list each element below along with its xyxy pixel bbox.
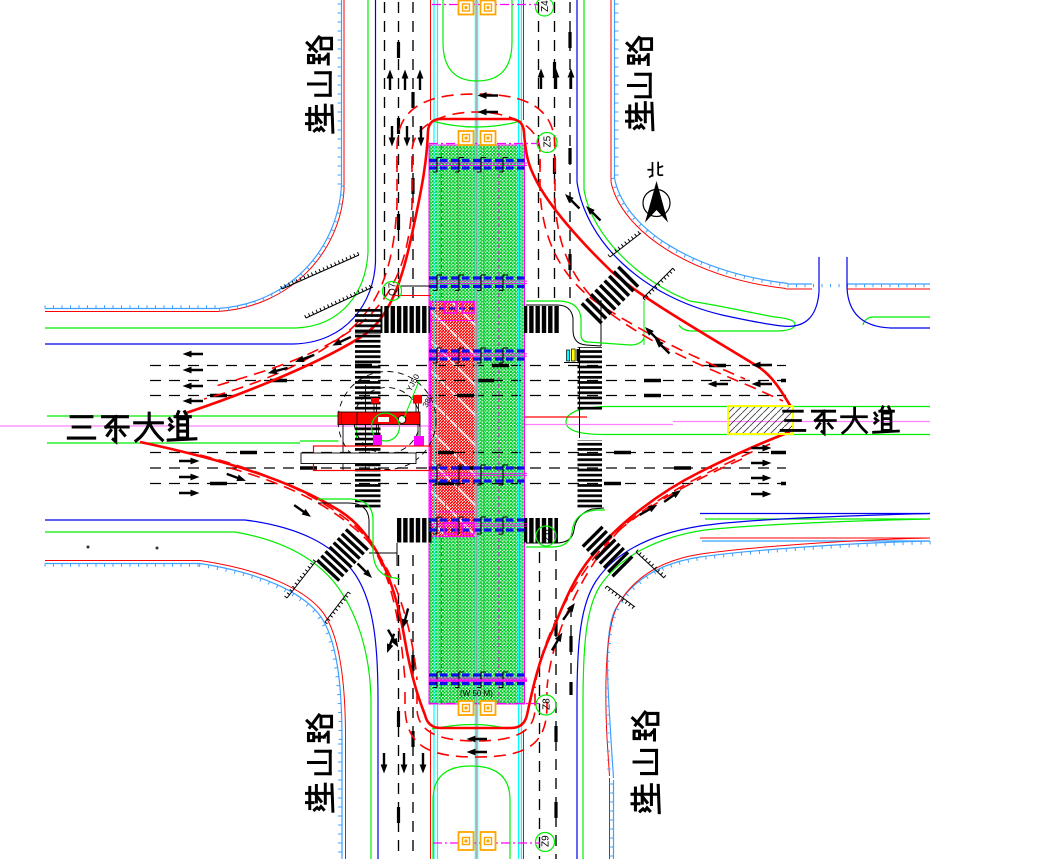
svg-text:Z8: Z8	[542, 698, 553, 710]
svg-text:Z4: Z4	[540, 0, 551, 12]
svg-text:(W 50 M): (W 50 M)	[460, 689, 493, 698]
svg-text:Z5: Z5	[543, 135, 554, 147]
svg-text:Z6: Z6	[542, 529, 553, 541]
svg-text:Z9: Z9	[541, 835, 552, 847]
svg-text:Q7: Q7	[388, 282, 399, 296]
